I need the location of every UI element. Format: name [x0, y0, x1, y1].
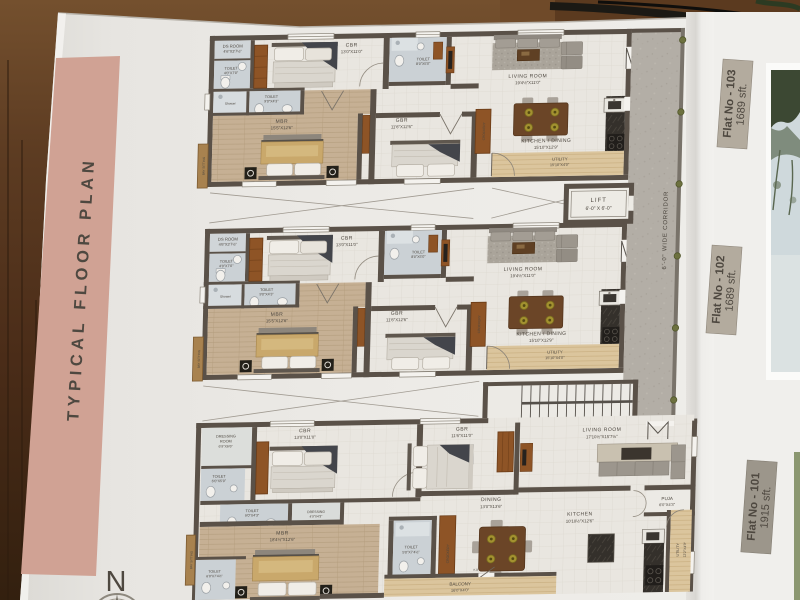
svg-text:MBR: MBR	[276, 530, 289, 536]
svg-text:6'9"X6'6": 6'9"X6'6"	[219, 444, 234, 448]
svg-text:12'2"X4'0": 12'2"X4'0"	[683, 541, 687, 557]
svg-text:13'0"X11'0": 13'0"X11'0"	[294, 435, 316, 440]
svg-text:6'-0" X 6'-0": 6'-0" X 6'-0"	[585, 206, 611, 212]
svg-text:DRESSING: DRESSING	[307, 510, 325, 514]
svg-text:6'0"X5'0": 6'0"X5'0"	[212, 479, 227, 483]
svg-text:9'0"X4'3": 9'0"X4'3"	[245, 513, 260, 517]
svg-text:6'0"X4'3": 6'0"X4'3"	[659, 502, 676, 507]
svg-text:BAY SITTING: BAY SITTING	[189, 550, 193, 569]
svg-text:10'10½"X12'6": 10'10½"X12'6"	[566, 518, 594, 523]
svg-text:KITCHEN: KITCHEN	[567, 511, 593, 517]
svg-text:UTILITY: UTILITY	[676, 543, 680, 557]
svg-text:K.D: K.D	[473, 568, 478, 572]
svg-text:11'6"X11'0": 11'6"X11'0"	[451, 433, 473, 438]
svg-text:GBR: GBR	[456, 426, 468, 432]
svg-text:4'9"X4'3": 4'9"X4'3"	[310, 514, 323, 518]
svg-text:CROCKERY: CROCKERY	[446, 543, 450, 563]
svg-text:6'0"X7'4½": 6'0"X7'4½"	[206, 574, 223, 578]
svg-text:LIFT: LIFT	[590, 198, 606, 204]
svg-text:16'0"X4'0": 16'0"X4'0"	[451, 587, 470, 592]
svg-text:CBR: CBR	[299, 428, 311, 434]
svg-text:5'0"X7'4½": 5'0"X7'4½"	[402, 550, 420, 554]
svg-text:18'4½"X12'6": 18'4½"X12'6"	[270, 537, 296, 542]
svg-text:DINING: DINING	[481, 497, 502, 503]
svg-text:PUJA: PUJA	[661, 496, 673, 501]
svg-text:17'10½"X15'7½": 17'10½"X15'7½"	[586, 434, 618, 440]
svg-text:LIVING ROOM: LIVING ROOM	[582, 427, 621, 434]
svg-text:BALCONY: BALCONY	[449, 581, 471, 586]
svg-text:TOILET: TOILET	[404, 545, 418, 549]
svg-text:ROOM: ROOM	[220, 439, 232, 443]
svg-text:13'0"X13'6": 13'0"X13'6"	[480, 504, 502, 509]
svg-text:DRESSING: DRESSING	[216, 434, 236, 438]
